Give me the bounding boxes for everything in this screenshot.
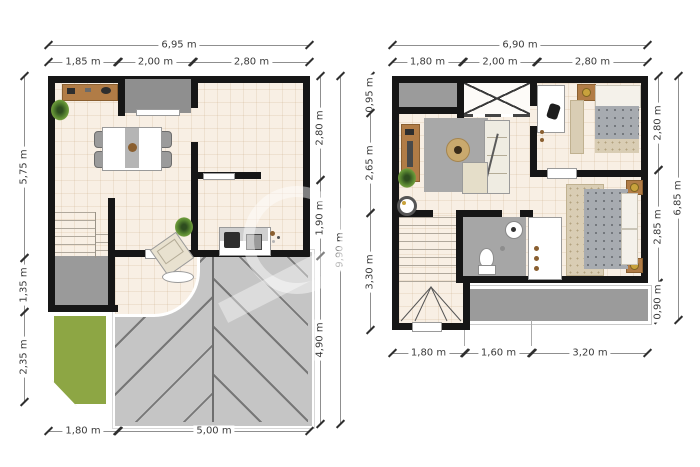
wall (530, 76, 537, 106)
dim-label: 6,95 m (158, 40, 199, 51)
stair-run-lines (399, 285, 463, 323)
dim-label: 2,65 m (365, 142, 376, 183)
staircase-divider (95, 212, 96, 258)
dim-segment: 0,90 m (652, 283, 664, 320)
dim-segment: 2,00 m (463, 56, 537, 68)
wardrobe (528, 217, 562, 280)
dim-label: 2,85 m (653, 206, 664, 247)
bed (566, 184, 640, 274)
dim-label: 6,85 m (673, 177, 684, 218)
dim-segment: 0,95 m (364, 76, 376, 113)
dim-label: 3,30 m (365, 251, 376, 292)
floor-lamp (397, 196, 417, 216)
dim-segment: 1,80 m (392, 56, 463, 68)
sofa-chaise (462, 162, 488, 194)
wall (457, 76, 464, 120)
porch-roof (399, 83, 457, 107)
dim-segment: 5,75 m (18, 76, 30, 258)
staircase-landing-steps (95, 234, 109, 258)
dim-label: 3,20 m (569, 348, 610, 359)
wall (520, 210, 533, 217)
leader-line (531, 320, 532, 346)
dining-table (102, 127, 162, 171)
decor-dots (540, 130, 544, 134)
dim-total-height: 6,85 m (672, 76, 684, 320)
dim-segment: 1,80 m (48, 425, 118, 437)
dim-label: 2,80 m (315, 107, 326, 148)
window (203, 173, 235, 180)
dim-label: 2,80 m (653, 102, 664, 143)
floor-drain (500, 246, 505, 251)
wall (191, 76, 198, 108)
upper-staircase (399, 217, 463, 287)
wall (463, 276, 470, 330)
dim-segment: 2,85 m (652, 170, 664, 283)
dim-label: 1,80 m (408, 348, 449, 359)
wall (456, 210, 463, 283)
dim-segment: 1,85 m (48, 56, 118, 68)
dim-label: 5,75 m (19, 146, 30, 187)
dim-segment: 5,00 m (118, 425, 310, 437)
dim-label: 5,00 m (193, 426, 234, 437)
wall (533, 170, 547, 177)
coffee-table (446, 138, 470, 162)
dim-segment: 2,00 m (118, 56, 193, 68)
staircase (55, 212, 95, 258)
dim-segment: 1,60 m (465, 347, 532, 359)
wall (108, 198, 115, 256)
plant (393, 163, 421, 193)
dim-label: 2,80 m (231, 57, 272, 68)
dim-label: 4,90 m (315, 319, 326, 360)
dim-segment: 2,80 m (193, 56, 310, 68)
bedside-bench (570, 100, 584, 154)
driveway-center-line (212, 252, 214, 422)
dim-segment: 1,80 m (392, 347, 465, 359)
dim-label: 0,90 m (653, 281, 664, 322)
top-porch (125, 79, 191, 113)
dim-label: 1,60 m (478, 348, 519, 359)
grass-area (52, 314, 108, 406)
dim-segment: 2,80 m (652, 76, 664, 170)
wall (392, 76, 648, 83)
dim-label: 1,35 m (19, 264, 30, 305)
void-window (473, 114, 485, 117)
bedroom-door (547, 168, 577, 179)
plant (170, 212, 198, 242)
dim-label: 1,80 m (407, 57, 448, 68)
dim-label: 1,80 m (62, 426, 103, 437)
dim-label: 2,35 m (19, 336, 30, 377)
bed (593, 84, 641, 154)
wall (575, 170, 648, 177)
wall (108, 256, 115, 308)
stair-tower-door (412, 322, 442, 332)
sink (505, 221, 523, 239)
dim-label: 6,90 m (499, 40, 540, 51)
void-open-below (464, 83, 530, 114)
dim-segment: 2,35 m (18, 312, 30, 402)
dim-label: 2,00 m (135, 57, 176, 68)
dim-segment: 3,30 m (364, 213, 376, 330)
plant (46, 94, 74, 126)
dim-total-width: 6,90 m (392, 39, 648, 51)
leader-line (464, 330, 465, 346)
dim-segment: 2,80 m (537, 56, 648, 68)
dim-label: 1,85 m (62, 57, 103, 68)
floorplan-canvas: 6,95 m 1,85 m 2,00 m 2,80 m 5,75 m 1,35 … (0, 0, 700, 467)
dim-label: 2,00 m (479, 57, 520, 68)
balcony (463, 286, 651, 324)
wall (399, 107, 457, 114)
entry-porch-floor (55, 256, 111, 306)
porch-door (136, 109, 180, 116)
dim-segment: 1,35 m (18, 258, 30, 312)
kitchen-sink (224, 232, 240, 248)
dim-segment: 2,65 m (364, 113, 376, 213)
wall (111, 250, 147, 257)
dim-label: 2,80 m (572, 57, 613, 68)
void-window (501, 114, 513, 117)
dim-segment: 2,80 m (314, 76, 326, 180)
dim-segment: 3,20 m (532, 347, 648, 359)
dim-total-width: 6,95 m (48, 39, 310, 51)
wall (118, 76, 125, 116)
side-table (162, 271, 194, 283)
